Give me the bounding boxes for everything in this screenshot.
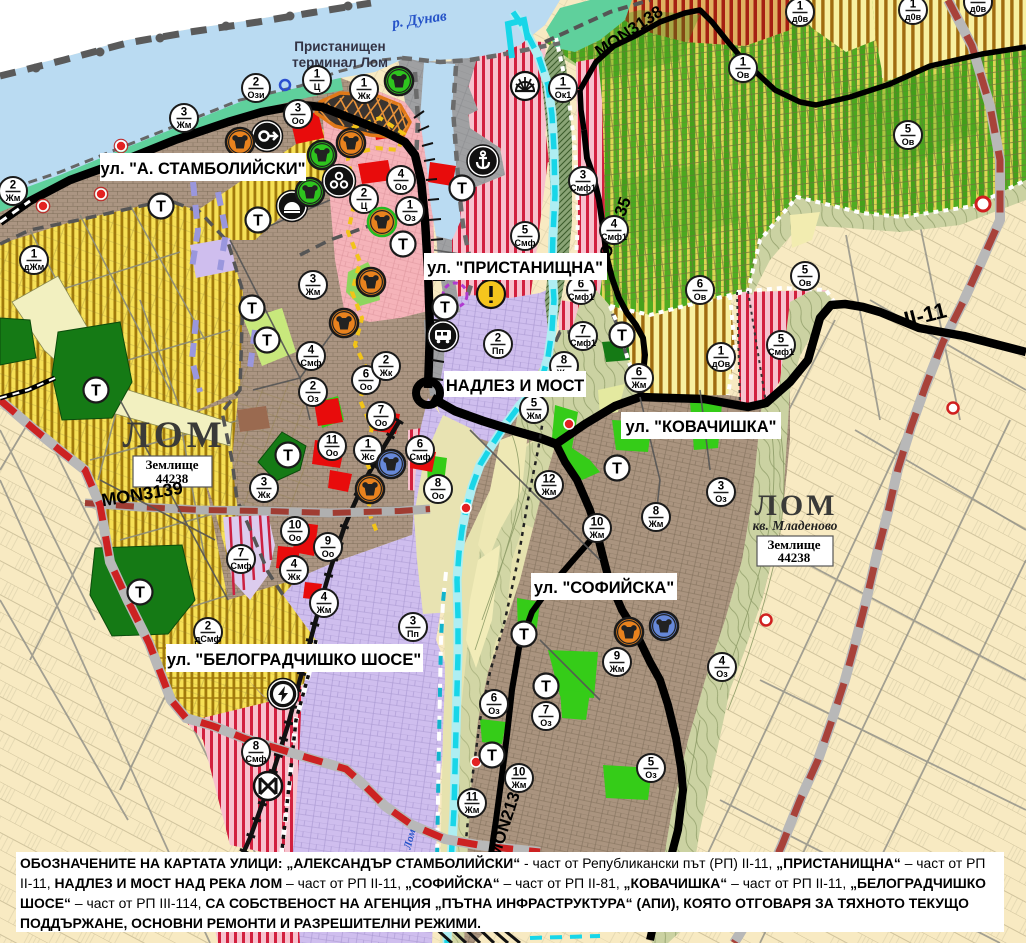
svg-text:1: 1 bbox=[560, 77, 567, 89]
svg-text:Жм: Жм bbox=[648, 519, 664, 529]
svg-text:Пп: Пп bbox=[407, 629, 419, 639]
svg-text:1: 1 bbox=[718, 346, 725, 358]
svg-text:Оз: Оз bbox=[404, 213, 416, 223]
svg-text:Смф1: Смф1 bbox=[601, 232, 627, 242]
svg-text:10: 10 bbox=[289, 520, 302, 532]
svg-text:Т: Т bbox=[440, 300, 450, 317]
svg-text:11: 11 bbox=[466, 792, 479, 804]
svg-text:Жс: Жс bbox=[360, 452, 374, 462]
svg-text:Т: Т bbox=[135, 585, 145, 602]
svg-text:ЛОМ: ЛОМ bbox=[122, 415, 225, 456]
svg-text:6: 6 bbox=[417, 439, 423, 451]
svg-text:НАДЛЕЗ И МОСТ: НАДЛЕЗ И МОСТ bbox=[446, 377, 584, 395]
svg-text:Т: Т bbox=[283, 448, 293, 465]
svg-text:10: 10 bbox=[513, 767, 526, 779]
svg-text:ул. "КОВАЧИШКА": ул. "КОВАЧИШКА" bbox=[626, 418, 777, 436]
svg-text:5: 5 bbox=[522, 225, 529, 237]
svg-text:6: 6 bbox=[578, 279, 584, 291]
svg-text:8: 8 bbox=[435, 478, 442, 490]
svg-text:Смф1: Смф1 bbox=[768, 347, 794, 357]
svg-text:Жм: Жм bbox=[305, 287, 321, 297]
svg-text:д0в: д0в bbox=[970, 4, 987, 14]
svg-text:ул. "СОФИЙСКА": ул. "СОФИЙСКА" bbox=[534, 578, 674, 597]
svg-text:Оо: Оо bbox=[289, 533, 302, 543]
svg-text:II-11, НАДЛЕЗ И МОСТ НАД РЕКА: II-11, НАДЛЕЗ И МОСТ НАД РЕКА ЛОМ – част… bbox=[20, 874, 986, 891]
svg-text:5: 5 bbox=[905, 124, 912, 136]
svg-text:8: 8 bbox=[253, 741, 260, 753]
svg-text:5: 5 bbox=[778, 334, 785, 346]
svg-text:Т: Т bbox=[253, 213, 263, 230]
svg-text:ОБОЗНАЧЕНИТЕ НА КАРТАТА УЛИЦИ:: ОБОЗНАЧЕНИТЕ НА КАРТАТА УЛИЦИ: „АЛЕКСАНД… bbox=[20, 854, 985, 871]
svg-text:Оо: Оо bbox=[360, 382, 373, 392]
svg-text:Ов: Ов bbox=[799, 278, 812, 288]
svg-text:Оо: Оо bbox=[326, 448, 339, 458]
svg-text:Жм: Жм bbox=[176, 120, 192, 130]
svg-text:10: 10 bbox=[591, 517, 604, 529]
svg-text:1: 1 bbox=[910, 0, 917, 11]
svg-text:6: 6 bbox=[697, 279, 703, 291]
svg-text:Жк: Жк bbox=[379, 368, 393, 378]
svg-text:Т: Т bbox=[398, 237, 408, 254]
svg-text:Смф: Смф bbox=[231, 561, 252, 571]
svg-text:Т: Т bbox=[541, 679, 551, 696]
svg-text:Пристанищен: Пристанищен bbox=[294, 39, 385, 54]
svg-text:Смф: Смф bbox=[246, 754, 267, 764]
svg-text:Жм: Жм bbox=[464, 805, 480, 815]
svg-text:Смф: Смф bbox=[515, 238, 536, 248]
svg-text:Т: Т bbox=[519, 627, 529, 644]
svg-text:Жм: Жм bbox=[631, 380, 647, 390]
svg-text:2: 2 bbox=[310, 381, 316, 393]
svg-text:Оо: Оо bbox=[432, 491, 445, 501]
svg-text:3: 3 bbox=[718, 481, 724, 493]
svg-text:Оз: Оз bbox=[540, 718, 552, 728]
svg-text:1: 1 bbox=[975, 0, 982, 3]
svg-text:Жм: Жм bbox=[316, 605, 332, 615]
svg-text:Жм: Жм bbox=[5, 193, 21, 203]
svg-text:7: 7 bbox=[543, 705, 549, 717]
svg-text:Оз: Оз bbox=[645, 770, 657, 780]
svg-text:7: 7 bbox=[378, 405, 384, 417]
svg-text:д0в: д0в bbox=[905, 12, 922, 22]
svg-text:Т: Т bbox=[457, 181, 467, 198]
svg-text:1: 1 bbox=[314, 69, 321, 81]
svg-text:д0в: д0в bbox=[792, 14, 809, 24]
svg-text:Т: Т bbox=[487, 748, 497, 765]
svg-text:6: 6 bbox=[363, 369, 369, 381]
svg-text:3: 3 bbox=[261, 477, 267, 489]
svg-text:Оз: Оз bbox=[715, 494, 727, 504]
svg-text:Смф: Смф bbox=[301, 358, 322, 368]
svg-text:7: 7 bbox=[238, 548, 244, 560]
svg-text:2: 2 bbox=[383, 355, 389, 367]
svg-text:1: 1 bbox=[407, 200, 414, 212]
svg-text:2: 2 bbox=[253, 77, 259, 89]
svg-text:6: 6 bbox=[491, 693, 497, 705]
svg-text:Землище: Землище bbox=[145, 457, 198, 472]
svg-text:Оо: Оо bbox=[395, 182, 408, 192]
svg-text:ул. "А. СТАМБОЛИЙСКИ": ул. "А. СТАМБОЛИЙСКИ" bbox=[101, 159, 306, 178]
svg-text:Жм: Жм bbox=[609, 664, 625, 674]
svg-text:Пп: Пп bbox=[492, 346, 504, 356]
svg-text:2: 2 bbox=[361, 188, 367, 200]
svg-text:Ов: Ов bbox=[737, 70, 750, 80]
svg-text:1: 1 bbox=[365, 439, 372, 451]
svg-text:2: 2 bbox=[495, 333, 501, 345]
svg-text:Жк: Жк bbox=[357, 91, 371, 101]
svg-text:3: 3 bbox=[410, 616, 416, 628]
svg-text:дСмф: дСмф bbox=[195, 634, 222, 644]
svg-text:Смф1: Смф1 bbox=[570, 183, 596, 193]
svg-text:4: 4 bbox=[291, 559, 298, 571]
svg-text:5: 5 bbox=[531, 398, 538, 410]
svg-text:Смф: Смф bbox=[410, 452, 431, 462]
svg-text:Оо: Оо bbox=[375, 418, 388, 428]
svg-text:2: 2 bbox=[205, 621, 211, 633]
svg-text:44238: 44238 bbox=[778, 550, 811, 565]
svg-text:Жм: Жм bbox=[511, 780, 527, 790]
svg-text:Смф1: Смф1 bbox=[568, 292, 594, 302]
svg-text:8: 8 bbox=[561, 355, 568, 367]
svg-text:Оз: Оз bbox=[716, 669, 728, 679]
svg-text:Жк: Жк bbox=[257, 490, 271, 500]
svg-text:Смф1: Смф1 bbox=[570, 338, 596, 348]
svg-text:11: 11 bbox=[326, 435, 339, 447]
svg-text:1: 1 bbox=[740, 57, 747, 69]
svg-text:дЖм: дЖм bbox=[24, 262, 45, 272]
svg-text:4: 4 bbox=[321, 592, 328, 604]
svg-text:Жм: Жм bbox=[526, 411, 542, 421]
svg-text:Т: Т bbox=[617, 328, 627, 345]
svg-text:Оз: Оз bbox=[488, 706, 500, 716]
svg-text:5: 5 bbox=[802, 265, 809, 277]
svg-text:4: 4 bbox=[611, 219, 618, 231]
svg-text:4: 4 bbox=[398, 169, 405, 181]
svg-text:Т: Т bbox=[612, 461, 622, 478]
svg-text:Жм: Жм bbox=[589, 530, 605, 540]
svg-text:Ов: Ов bbox=[902, 137, 915, 147]
svg-text:Оо: Оо bbox=[322, 549, 335, 559]
svg-text:дОв: дОв bbox=[712, 359, 731, 369]
svg-text:Ок1: Ок1 bbox=[555, 90, 572, 100]
svg-text:3: 3 bbox=[295, 103, 301, 115]
svg-text:ул. "БЕЛОГРАДЧИШКО ШОСЕ": ул. "БЕЛОГРАДЧИШКО ШОСЕ" bbox=[167, 651, 421, 669]
svg-text:Т: Т bbox=[262, 333, 272, 350]
svg-text:3: 3 bbox=[181, 107, 187, 119]
svg-text:1: 1 bbox=[797, 1, 804, 13]
svg-text:терминал Лом: терминал Лом bbox=[292, 55, 388, 70]
svg-text:Ози: Ози bbox=[247, 90, 264, 100]
svg-text:7: 7 bbox=[580, 325, 586, 337]
svg-text:кв. Младеново: кв. Младеново bbox=[753, 518, 838, 533]
svg-text:1: 1 bbox=[31, 249, 38, 261]
svg-text:3: 3 bbox=[580, 170, 586, 182]
svg-text:1: 1 bbox=[361, 78, 368, 90]
svg-text:ШОСЕ“ – част от РП III-114, СА: ШОСЕ“ – част от РП III-114, СА СОБСТВЕНО… bbox=[20, 895, 969, 911]
svg-text:6: 6 bbox=[636, 367, 642, 379]
svg-text:9: 9 bbox=[614, 651, 620, 663]
svg-text:Т: Т bbox=[247, 301, 257, 318]
svg-text:Ов: Ов bbox=[694, 292, 707, 302]
svg-text:Оз: Оз bbox=[307, 394, 319, 404]
svg-text:Жк: Жк bbox=[287, 572, 301, 582]
svg-text:Оо: Оо bbox=[292, 116, 305, 126]
svg-text:Ц: Ц bbox=[361, 201, 368, 211]
svg-text:2: 2 bbox=[10, 180, 16, 192]
svg-text:8: 8 bbox=[653, 506, 660, 518]
svg-text:Т: Т bbox=[91, 383, 101, 400]
svg-text:Ц: Ц bbox=[314, 82, 321, 92]
svg-text:3: 3 bbox=[310, 274, 316, 286]
svg-text:ПОДДЪРЖАНЕ, ОСНОВНИ РЕМОНТИ И: ПОДДЪРЖАНЕ, ОСНОВНИ РЕМОНТИ И РАЗРЕШИТЕЛ… bbox=[20, 915, 481, 931]
svg-text:5: 5 bbox=[648, 757, 655, 769]
svg-text:4: 4 bbox=[308, 345, 315, 357]
svg-text:9: 9 bbox=[325, 536, 331, 548]
svg-text:Т: Т bbox=[156, 199, 166, 216]
svg-text:Жм: Жм bbox=[541, 487, 557, 497]
svg-text:12: 12 bbox=[543, 474, 556, 486]
svg-text:4: 4 bbox=[719, 656, 726, 668]
svg-text:ул. "ПРИСТАНИЩНА": ул. "ПРИСТАНИЩНА" bbox=[427, 259, 603, 277]
